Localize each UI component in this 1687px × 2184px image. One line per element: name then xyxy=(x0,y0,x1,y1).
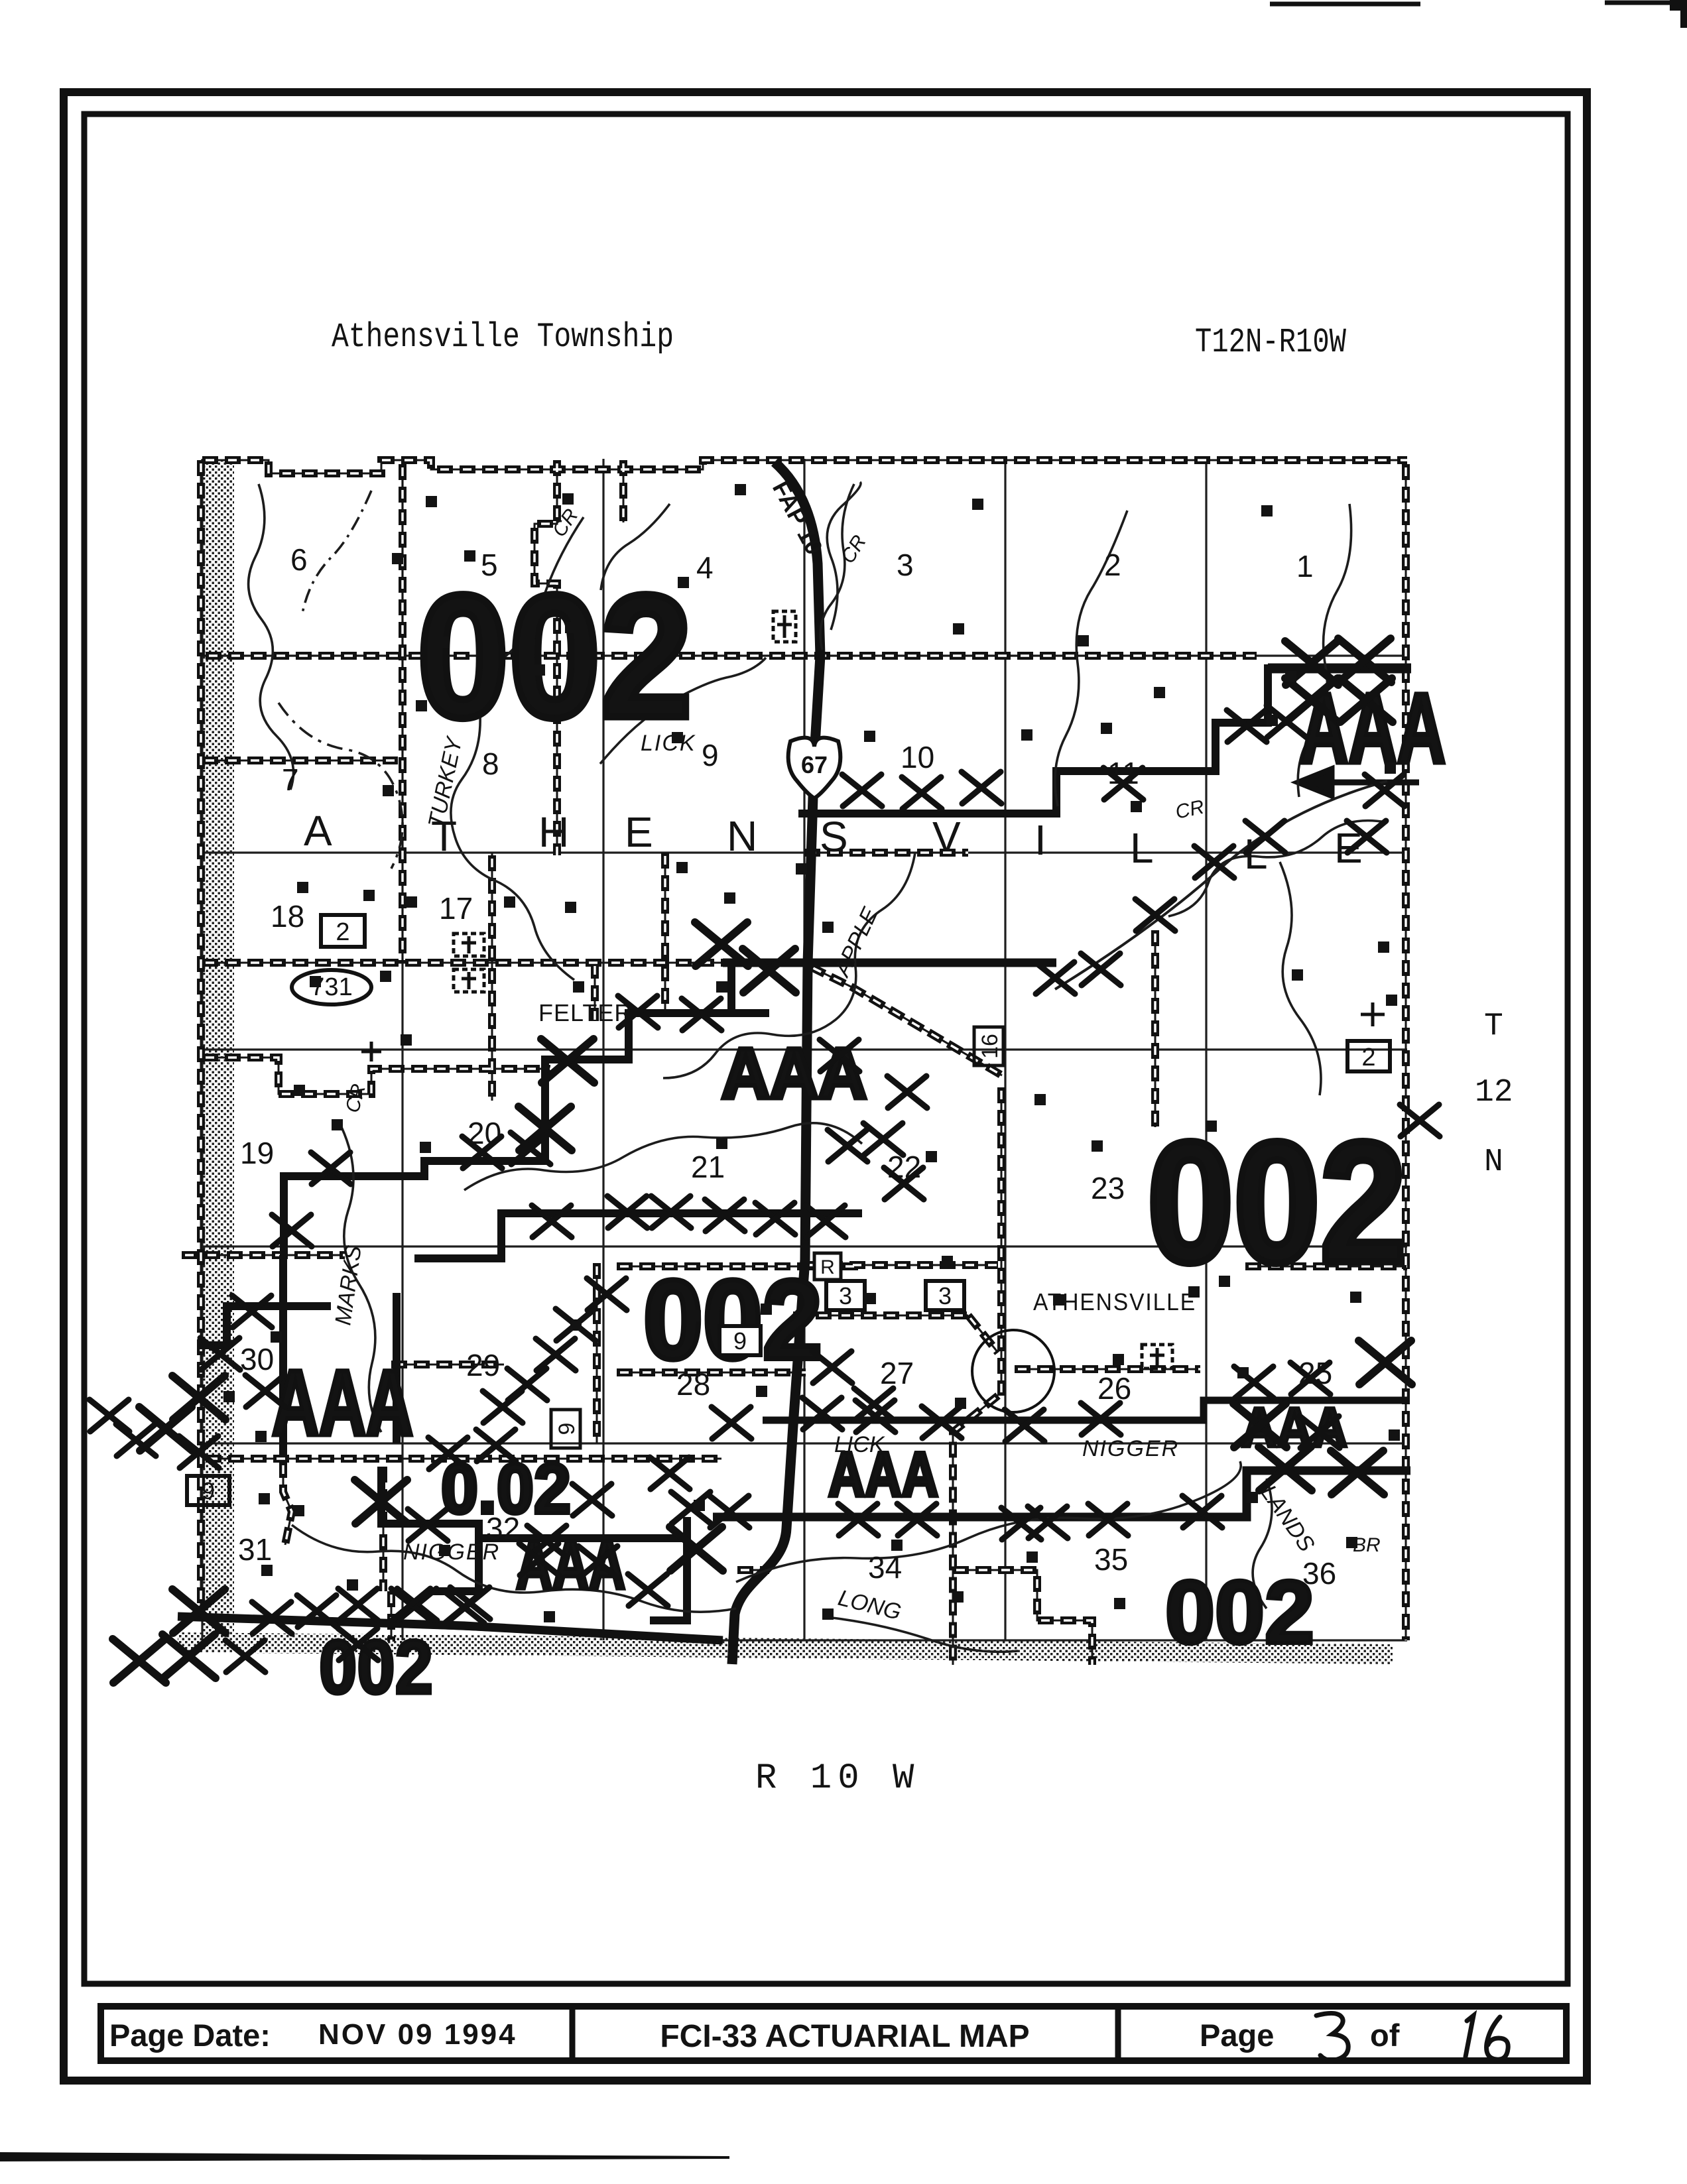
svg-text:Athensville Township: Athensville Township xyxy=(332,318,674,357)
svg-text:9: 9 xyxy=(202,1477,215,1504)
svg-text:V: V xyxy=(932,813,961,861)
svg-text:N: N xyxy=(727,812,757,860)
svg-text:2: 2 xyxy=(1104,548,1121,582)
svg-text:T: T xyxy=(1484,1008,1503,1044)
svg-text:R 10 W: R 10 W xyxy=(755,1758,920,1799)
svg-text:19: 19 xyxy=(240,1136,274,1170)
svg-text:9: 9 xyxy=(733,1327,747,1355)
svg-text:2: 2 xyxy=(336,918,349,946)
svg-text:26: 26 xyxy=(1097,1371,1131,1406)
svg-text:17: 17 xyxy=(439,891,473,926)
svg-text:30: 30 xyxy=(240,1342,274,1376)
svg-text:E: E xyxy=(625,808,653,856)
svg-text:3: 3 xyxy=(938,1282,952,1309)
svg-text:T12N-R10W: T12N-R10W xyxy=(1195,323,1347,362)
svg-text:3: 3 xyxy=(839,1282,852,1309)
svg-text:NIGGER: NIGGER xyxy=(1082,1436,1179,1461)
svg-text:AAA: AAA xyxy=(828,1439,938,1510)
svg-text:FCI-33 ACTUARIAL MAP: FCI-33 ACTUARIAL MAP xyxy=(660,2019,1029,2054)
svg-text:AAA: AAA xyxy=(721,1033,867,1113)
svg-text:4: 4 xyxy=(696,550,714,585)
svg-text:Page Date:: Page Date: xyxy=(109,2018,271,2053)
svg-text:NOV 09 1994: NOV 09 1994 xyxy=(318,2018,517,2051)
svg-text:16: 16 xyxy=(977,1034,1003,1059)
svg-text:S: S xyxy=(820,813,848,861)
svg-text:34: 34 xyxy=(868,1550,902,1585)
svg-text:A: A xyxy=(304,807,332,855)
svg-text:R: R xyxy=(820,1256,835,1278)
svg-text:NIGGER: NIGGER xyxy=(403,1540,500,1565)
svg-text:9: 9 xyxy=(554,1423,580,1435)
svg-text:3: 3 xyxy=(897,548,914,582)
svg-text:of: of xyxy=(1370,2018,1400,2053)
svg-text:002: 002 xyxy=(417,558,692,754)
svg-text:002: 002 xyxy=(1165,1562,1314,1662)
svg-text:002: 002 xyxy=(1147,1107,1406,1299)
svg-text:29: 29 xyxy=(466,1348,500,1382)
svg-text:21: 21 xyxy=(691,1150,725,1184)
svg-text:Page: Page xyxy=(1200,2018,1274,2053)
svg-text:31: 31 xyxy=(238,1532,272,1567)
svg-text:L: L xyxy=(1130,824,1154,872)
svg-text:N: N xyxy=(1484,1144,1503,1180)
svg-text:AAA: AAA xyxy=(272,1351,413,1455)
svg-text:I: I xyxy=(1034,816,1046,864)
svg-text:12: 12 xyxy=(1475,1075,1513,1111)
svg-text:23: 23 xyxy=(1091,1171,1125,1205)
svg-text:9: 9 xyxy=(702,738,719,772)
svg-text:FELTER: FELTER xyxy=(538,999,632,1026)
svg-text:7: 7 xyxy=(282,762,299,797)
svg-text:18: 18 xyxy=(271,899,304,934)
svg-text:2: 2 xyxy=(1361,1044,1375,1071)
svg-text:1: 1 xyxy=(1296,549,1314,583)
svg-text:67: 67 xyxy=(801,751,828,778)
svg-text:6: 6 xyxy=(290,542,308,577)
svg-text:002: 002 xyxy=(319,1625,433,1710)
svg-text:002: 002 xyxy=(643,1257,822,1383)
svg-text:10: 10 xyxy=(901,740,934,774)
svg-text:35: 35 xyxy=(1094,1542,1128,1577)
svg-text:27: 27 xyxy=(880,1356,914,1390)
svg-text:H: H xyxy=(538,808,569,856)
